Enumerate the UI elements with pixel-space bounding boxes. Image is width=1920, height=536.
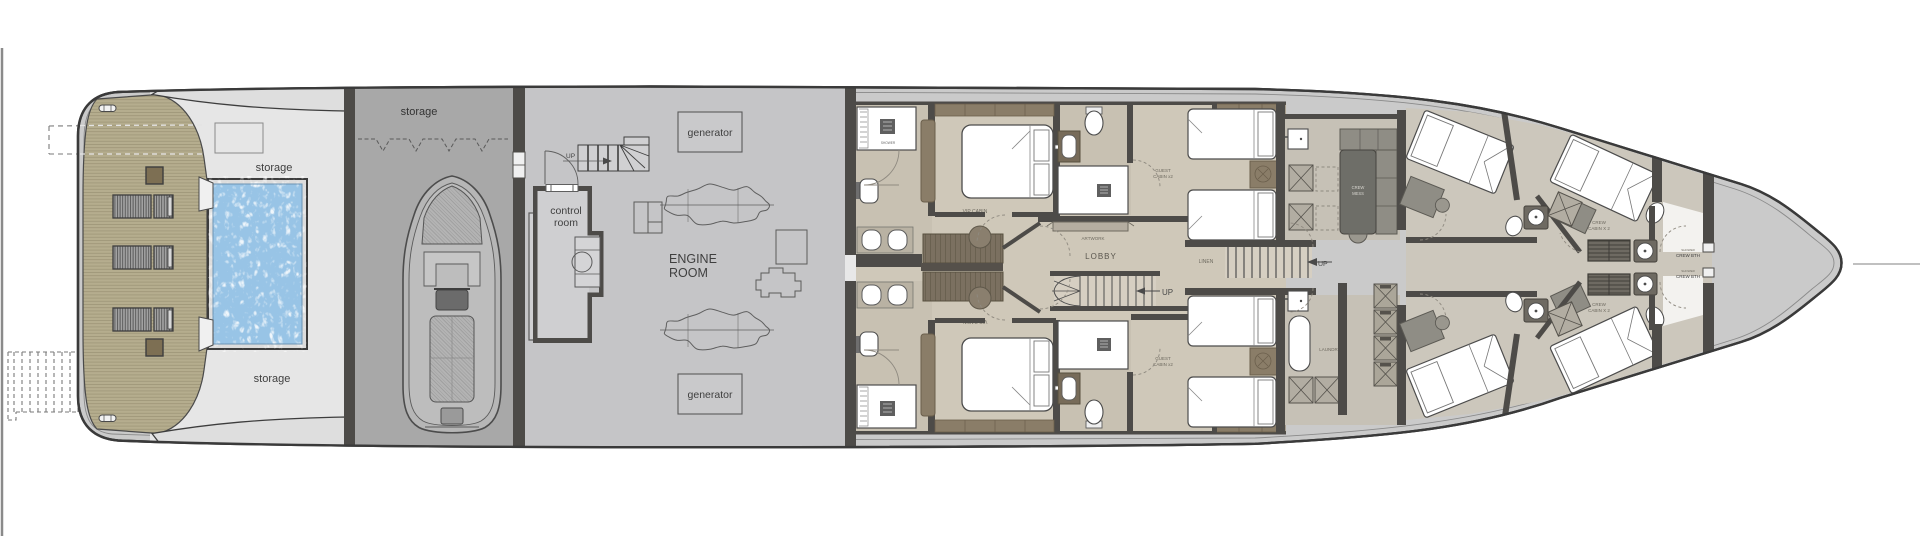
svg-text:CREW: CREW <box>1592 220 1607 225</box>
svg-text:CABIN X 2: CABIN X 2 <box>1588 308 1610 313</box>
svg-text:storage: storage <box>254 373 291 385</box>
svg-text:SHOWER: SHOWER <box>881 141 896 145</box>
svg-text:ROOM: ROOM <box>669 266 708 280</box>
svg-text:CREW: CREW <box>1592 302 1607 307</box>
svg-text:generator: generator <box>688 389 733 401</box>
svg-text:CABIN X 2: CABIN X 2 <box>1588 226 1610 231</box>
svg-text:control: control <box>550 205 582 217</box>
svg-text:CABIN x2: CABIN x2 <box>1153 362 1173 367</box>
svg-text:UP: UP <box>1318 261 1328 268</box>
svg-text:CABIN x2: CABIN x2 <box>1153 174 1173 179</box>
svg-text:LAUNDRY: LAUNDRY <box>1319 347 1340 352</box>
svg-text:LOBBY: LOBBY <box>1085 252 1117 261</box>
svg-text:GUEST: GUEST <box>1155 356 1171 361</box>
svg-text:room: room <box>554 217 578 229</box>
svg-text:GUEST: GUEST <box>1155 168 1171 173</box>
svg-text:SHOWER: SHOWER <box>1681 248 1695 252</box>
svg-text:CREW BTH: CREW BTH <box>1676 274 1700 279</box>
svg-text:CREW: CREW <box>1352 185 1365 190</box>
svg-text:ENGINE: ENGINE <box>669 252 717 266</box>
svg-text:LINEN: LINEN <box>1199 259 1214 265</box>
svg-text:generator: generator <box>688 127 733 139</box>
svg-text:CREW BTH: CREW BTH <box>1676 253 1700 258</box>
svg-text:SHOWER: SHOWER <box>1681 269 1695 273</box>
svg-text:storage: storage <box>401 106 438 118</box>
svg-text:MESS: MESS <box>1352 191 1364 196</box>
svg-text:UP: UP <box>566 153 575 160</box>
svg-text:UP: UP <box>1162 288 1173 297</box>
svg-text:storage: storage <box>256 162 293 174</box>
svg-text:ARTWORK: ARTWORK <box>1082 236 1105 241</box>
